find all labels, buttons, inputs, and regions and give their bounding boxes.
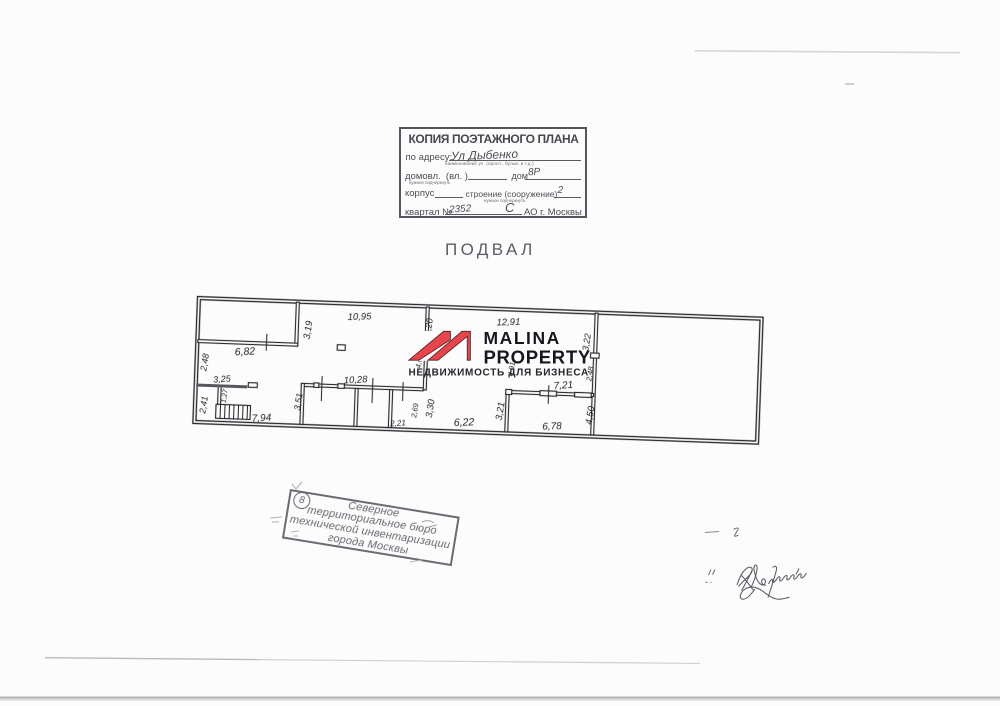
svg-text:7,21: 7,21 [553,380,573,392]
svg-text:НЕДВИЖИМОСТЬ ДЛЯ БИЗНЕСА: НЕДВИЖИМОСТЬ ДЛЯ БИЗНЕСА [409,368,589,379]
svg-text:2,69: 2,69 [409,402,420,420]
svg-text:6,78: 6,78 [542,421,562,433]
svg-text:10,28: 10,28 [344,374,369,386]
svg-text:2,21: 2,21 [389,418,406,428]
svg-text:3,19: 3,19 [302,319,316,340]
svg-text:3,30: 3,30 [424,398,438,419]
svg-text:4,50: 4,50 [584,405,598,426]
svg-text:1,27: 1,27 [221,388,230,404]
svg-text:7,94: 7,94 [252,413,272,425]
svg-text:2,48: 2,48 [198,353,211,373]
svg-text:6,22: 6,22 [454,416,475,429]
svg-text:3,25: 3,25 [213,373,232,384]
svg-text:2,41: 2,41 [197,395,210,415]
svg-text:PROPERTY: PROPERTY [484,347,591,368]
svg-text:MALINA: MALINA [484,328,561,348]
svg-text:12,91: 12,91 [496,317,520,329]
svg-text:10,95: 10,95 [347,311,372,323]
svg-text:6,82: 6,82 [234,345,255,358]
